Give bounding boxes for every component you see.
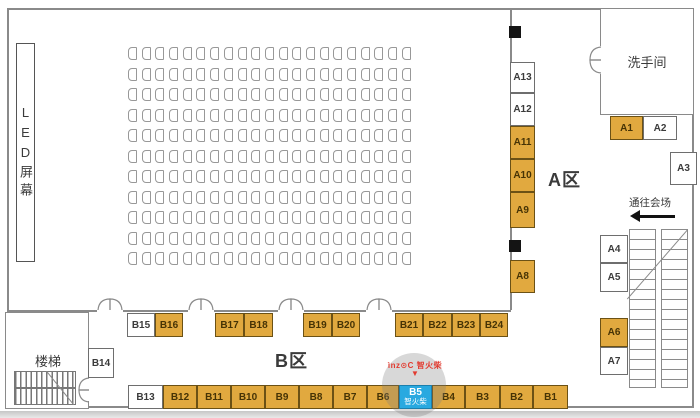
seat <box>155 191 164 204</box>
seat <box>279 47 288 60</box>
seat <box>265 211 274 224</box>
seat <box>320 47 329 60</box>
booth-A7: A7 <box>600 347 628 375</box>
seat <box>142 191 151 204</box>
seat <box>279 129 288 142</box>
seat <box>361 129 370 142</box>
seat <box>196 211 205 224</box>
seat <box>251 129 260 142</box>
booth-B21: B21 <box>395 313 423 337</box>
seat <box>251 109 260 122</box>
seat <box>128 88 137 101</box>
seating-grid <box>128 47 412 266</box>
seat <box>142 68 151 81</box>
booth-B2: B2 <box>500 385 533 409</box>
seat <box>142 150 151 163</box>
door-icon <box>588 46 602 74</box>
seat <box>155 68 164 81</box>
seat <box>374 47 383 60</box>
stairs-left-upper <box>14 371 76 388</box>
seat <box>306 68 315 81</box>
seat <box>224 232 233 245</box>
seat <box>292 211 301 224</box>
seat <box>388 129 397 142</box>
floor-shadow <box>0 411 700 418</box>
seat <box>361 211 370 224</box>
seat <box>292 88 301 101</box>
seat <box>251 170 260 183</box>
seat <box>388 211 397 224</box>
seat <box>306 88 315 101</box>
seat <box>361 232 370 245</box>
seat <box>374 252 383 265</box>
seat <box>306 232 315 245</box>
seat <box>333 129 342 142</box>
seat <box>169 232 178 245</box>
seat <box>142 47 151 60</box>
door-icon <box>76 377 90 403</box>
seat <box>292 170 301 183</box>
seat <box>183 88 192 101</box>
seat <box>183 68 192 81</box>
seat <box>224 47 233 60</box>
seat <box>347 109 356 122</box>
seat <box>238 191 247 204</box>
seat <box>128 252 137 265</box>
seat <box>306 129 315 142</box>
seat <box>183 129 192 142</box>
seat <box>333 68 342 81</box>
seat <box>388 232 397 245</box>
seat <box>306 47 315 60</box>
seat <box>210 211 219 224</box>
seat <box>388 47 397 60</box>
seat <box>142 211 151 224</box>
seat <box>238 150 247 163</box>
seat <box>320 191 329 204</box>
seat <box>374 191 383 204</box>
seat <box>361 109 370 122</box>
seat <box>361 150 370 163</box>
seat <box>306 109 315 122</box>
seat <box>238 170 247 183</box>
seat <box>196 109 205 122</box>
seat <box>402 47 411 60</box>
seat <box>142 88 151 101</box>
seat <box>374 88 383 101</box>
seat <box>320 252 329 265</box>
seat <box>224 191 233 204</box>
seat <box>169 170 178 183</box>
seat <box>183 47 192 60</box>
booth-A11: A11 <box>510 126 535 159</box>
seat <box>251 150 260 163</box>
booth-B9: B9 <box>265 385 299 409</box>
left-arrow-icon <box>630 210 676 222</box>
seat <box>210 232 219 245</box>
seat <box>142 252 151 265</box>
seat <box>128 129 137 142</box>
seat <box>196 129 205 142</box>
seat <box>347 170 356 183</box>
seat <box>333 109 342 122</box>
seat <box>347 252 356 265</box>
seat <box>169 47 178 60</box>
seat <box>320 150 329 163</box>
seat <box>320 88 329 101</box>
seat <box>333 211 342 224</box>
seat <box>238 68 247 81</box>
booth-B14: B14 <box>88 348 114 378</box>
seat <box>320 170 329 183</box>
seat <box>292 232 301 245</box>
seat <box>279 88 288 101</box>
booth-B11: B11 <box>197 385 231 409</box>
seat <box>292 47 301 60</box>
seat <box>402 191 411 204</box>
seat <box>183 150 192 163</box>
seat <box>251 88 260 101</box>
seat <box>347 129 356 142</box>
seat <box>238 129 247 142</box>
booth-A10: A10 <box>510 159 535 192</box>
seat <box>155 47 164 60</box>
seat <box>224 129 233 142</box>
seat <box>402 109 411 122</box>
booth-B24: B24 <box>480 313 508 337</box>
seat <box>374 109 383 122</box>
seat <box>128 191 137 204</box>
seat <box>306 191 315 204</box>
floor-plan: LED屏幕 洗手间 楼梯 A区 B区 通往会场 <box>0 0 700 418</box>
seat <box>155 88 164 101</box>
booth-B7: B7 <box>333 385 367 409</box>
seat <box>279 252 288 265</box>
seat <box>238 211 247 224</box>
seat <box>128 170 137 183</box>
seat <box>361 252 370 265</box>
seat <box>265 232 274 245</box>
seat <box>128 150 137 163</box>
seat <box>196 232 205 245</box>
seat <box>292 150 301 163</box>
seat <box>210 129 219 142</box>
seat <box>333 47 342 60</box>
seat <box>128 109 137 122</box>
seat <box>155 170 164 183</box>
booth-A1: A1 <box>610 116 643 140</box>
booth-A6: A6 <box>600 318 628 347</box>
seat <box>292 252 301 265</box>
pillar-icon <box>509 240 521 252</box>
seat <box>402 232 411 245</box>
seat <box>196 68 205 81</box>
led-screen: LED屏幕 <box>16 43 35 262</box>
seat <box>183 170 192 183</box>
seat <box>210 47 219 60</box>
seat <box>224 252 233 265</box>
seat <box>361 68 370 81</box>
seat <box>169 150 178 163</box>
seat <box>402 88 411 101</box>
area-b-label: B区 <box>275 347 308 373</box>
seat <box>347 88 356 101</box>
seat <box>169 129 178 142</box>
booth-A9: A9 <box>510 192 535 228</box>
to-venue-label: 通往会场 <box>629 195 671 210</box>
seat <box>388 252 397 265</box>
seat <box>155 150 164 163</box>
booth-B23: B23 <box>452 313 480 337</box>
seat <box>210 252 219 265</box>
seat <box>388 170 397 183</box>
seat <box>388 191 397 204</box>
seat <box>265 191 274 204</box>
seat <box>155 252 164 265</box>
seat <box>279 232 288 245</box>
seat <box>210 150 219 163</box>
seat <box>169 191 178 204</box>
double-door-icon <box>188 297 214 311</box>
seat <box>238 109 247 122</box>
booth-A8: A8 <box>510 260 535 293</box>
seat <box>347 211 356 224</box>
seat <box>320 68 329 81</box>
booth-B13: B13 <box>128 385 163 409</box>
seat <box>251 211 260 224</box>
double-door-icon <box>366 297 392 311</box>
seat <box>374 68 383 81</box>
pillar-icon <box>509 26 521 38</box>
seat <box>196 170 205 183</box>
seat <box>155 232 164 245</box>
seat <box>361 88 370 101</box>
seat <box>347 150 356 163</box>
seat <box>142 129 151 142</box>
seat <box>388 88 397 101</box>
seat <box>402 129 411 142</box>
seat <box>333 252 342 265</box>
brand-marker-icon: ▼ <box>409 369 421 378</box>
seat <box>251 68 260 81</box>
seat <box>292 68 301 81</box>
seat <box>402 211 411 224</box>
seat <box>128 47 137 60</box>
seat <box>155 129 164 142</box>
seat <box>374 211 383 224</box>
seat <box>306 211 315 224</box>
seat <box>320 109 329 122</box>
seat <box>210 109 219 122</box>
booth-B12: B12 <box>163 385 197 409</box>
seat <box>333 232 342 245</box>
booth-B15: B15 <box>127 313 155 337</box>
seat <box>265 47 274 60</box>
booth-B16: B16 <box>155 313 183 337</box>
seat <box>333 191 342 204</box>
seat <box>142 232 151 245</box>
seat <box>224 211 233 224</box>
seat <box>333 170 342 183</box>
seat <box>251 191 260 204</box>
booth-A13: A13 <box>510 62 535 93</box>
seat <box>265 68 274 81</box>
seat <box>142 109 151 122</box>
seat <box>265 109 274 122</box>
seat <box>265 129 274 142</box>
seat <box>292 109 301 122</box>
seat <box>169 252 178 265</box>
seat <box>128 232 137 245</box>
seat <box>333 88 342 101</box>
seat <box>183 109 192 122</box>
seat <box>224 150 233 163</box>
seat <box>142 170 151 183</box>
seat <box>361 191 370 204</box>
seat <box>388 68 397 81</box>
seat <box>279 68 288 81</box>
restroom: 洗手间 <box>600 8 694 115</box>
seat <box>155 109 164 122</box>
seat <box>265 170 274 183</box>
seat <box>388 150 397 163</box>
seat <box>374 150 383 163</box>
seat <box>251 232 260 245</box>
seat <box>279 211 288 224</box>
seat <box>402 252 411 265</box>
booth-B18: B18 <box>244 313 273 337</box>
booth-B5: B5智火柴 <box>399 385 432 409</box>
double-door-icon <box>278 297 304 311</box>
seat <box>279 191 288 204</box>
booth-B22: B22 <box>423 313 452 337</box>
seat <box>402 68 411 81</box>
seat <box>169 211 178 224</box>
seat <box>155 211 164 224</box>
seat <box>210 68 219 81</box>
seat <box>196 191 205 204</box>
seat <box>183 191 192 204</box>
seat <box>320 232 329 245</box>
seat <box>265 88 274 101</box>
booth-A12: A12 <box>510 93 535 126</box>
seat <box>347 191 356 204</box>
restroom-label: 洗手间 <box>627 52 666 71</box>
seat <box>238 252 247 265</box>
seat <box>361 170 370 183</box>
area-a-label: A区 <box>548 166 581 192</box>
seat <box>183 232 192 245</box>
seat <box>128 211 137 224</box>
booth-B3: B3 <box>465 385 500 409</box>
seat <box>402 150 411 163</box>
seat <box>388 109 397 122</box>
seat <box>306 150 315 163</box>
seat <box>169 88 178 101</box>
stairs-right-col1 <box>629 229 656 388</box>
booth-A5: A5 <box>600 263 628 292</box>
double-door-icon <box>97 297 123 311</box>
booth-B19: B19 <box>303 313 332 337</box>
seat <box>374 232 383 245</box>
seat <box>128 68 137 81</box>
seat <box>320 211 329 224</box>
seat <box>361 47 370 60</box>
seat <box>224 109 233 122</box>
seat <box>196 88 205 101</box>
seat <box>347 232 356 245</box>
seat <box>279 109 288 122</box>
seat <box>347 47 356 60</box>
booth-B10: B10 <box>231 385 265 409</box>
seat <box>251 252 260 265</box>
booth-A2: A2 <box>643 116 677 140</box>
seat <box>265 252 274 265</box>
seat <box>224 88 233 101</box>
seat <box>374 129 383 142</box>
seat <box>210 170 219 183</box>
stair-room-label: 楼梯 <box>35 351 61 370</box>
seat <box>306 252 315 265</box>
seat <box>374 170 383 183</box>
seat <box>210 88 219 101</box>
seat <box>183 252 192 265</box>
seat <box>169 68 178 81</box>
seat <box>347 68 356 81</box>
seat <box>279 170 288 183</box>
booth-A4: A4 <box>600 235 628 263</box>
seat <box>333 150 342 163</box>
seat <box>224 170 233 183</box>
seat <box>169 109 178 122</box>
seat <box>224 68 233 81</box>
seat <box>279 150 288 163</box>
seat <box>196 150 205 163</box>
seat <box>238 232 247 245</box>
booth-B17: B17 <box>215 313 244 337</box>
booth-B20: B20 <box>332 313 360 337</box>
booth-B1: B1 <box>533 385 568 409</box>
booth-B8: B8 <box>299 385 333 409</box>
seat <box>292 129 301 142</box>
seat <box>320 129 329 142</box>
seat <box>265 150 274 163</box>
seat <box>238 88 247 101</box>
seat <box>196 252 205 265</box>
led-screen-label: LED屏幕 <box>16 105 35 201</box>
seat <box>292 191 301 204</box>
seat <box>210 191 219 204</box>
seat <box>196 47 205 60</box>
seat <box>251 47 260 60</box>
seat <box>183 211 192 224</box>
booth-A3: A3 <box>670 152 697 185</box>
seat <box>306 170 315 183</box>
seat <box>238 47 247 60</box>
seat <box>402 170 411 183</box>
